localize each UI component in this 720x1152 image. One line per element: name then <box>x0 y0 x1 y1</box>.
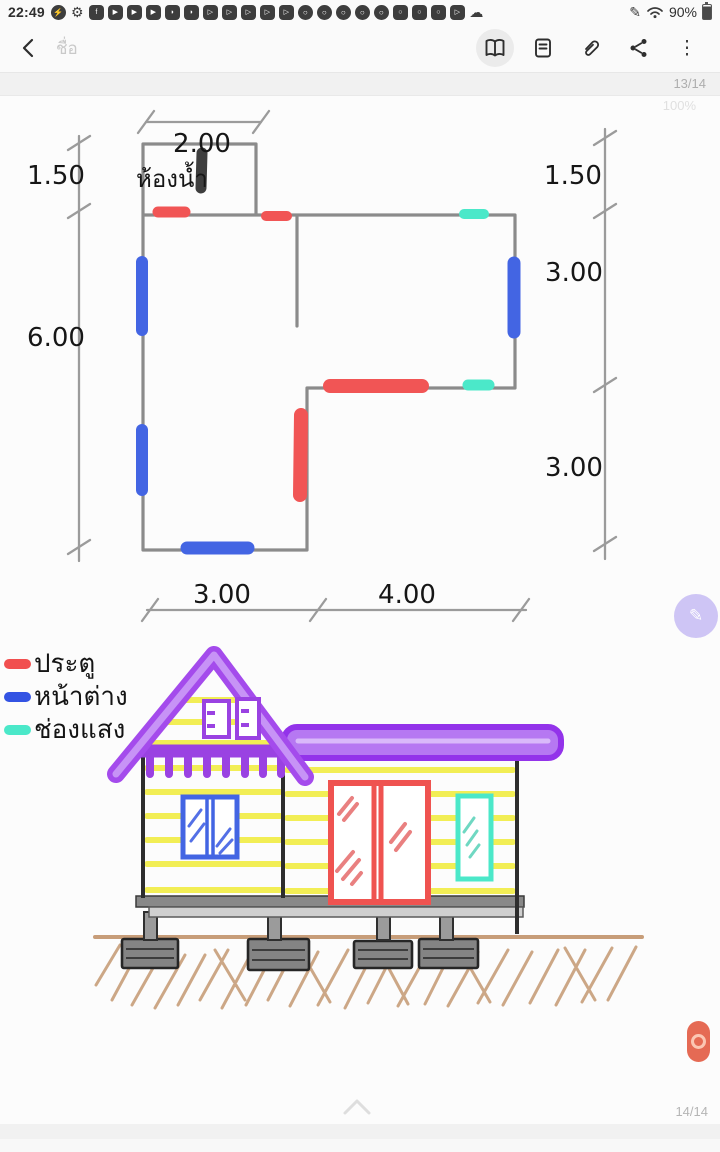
room-label: ห้องน้ำ <box>136 161 208 193</box>
page-indicator-bottom: 14/14 <box>675 1104 708 1119</box>
house-elevation <box>95 655 642 1008</box>
page-gap-bottom <box>0 1124 720 1139</box>
legend-label-door: ประตู <box>34 650 95 679</box>
footings <box>122 939 478 970</box>
floor-beam-lower <box>149 907 523 917</box>
dim-right-lower: 3.00 <box>545 453 603 483</box>
dim-left-upper: 1.50 <box>27 161 85 191</box>
legend-row-light: ช่องแสง <box>4 716 125 745</box>
edge-panel-handle[interactable] <box>687 1021 710 1062</box>
dim-top-width: 2.00 <box>173 129 231 159</box>
elevation-window-cyan <box>458 796 491 879</box>
door-color-swatch <box>4 659 31 669</box>
dim-bottom-left: 3.00 <box>193 580 251 610</box>
pen-edit-fab[interactable]: ✎ <box>674 594 718 638</box>
legend-label-window: หน้าต่าง <box>34 683 128 712</box>
pen-icon: ✎ <box>689 606 703 626</box>
legend-row-window: หน้าต่าง <box>4 683 128 712</box>
floor-plan-walls <box>143 144 515 550</box>
floor-plan: 2.00 ห้องน้ำ 1.50 6.00 1.50 3.00 3.00 3.… <box>27 111 616 621</box>
light-opening-strokes <box>464 214 489 385</box>
dim-left-total: 6.00 <box>27 323 85 353</box>
dim-right-middle: 3.00 <box>545 258 603 288</box>
dim-right-upper: 1.50 <box>544 161 602 191</box>
note-drawing: 2.00 ห้องน้ำ 1.50 6.00 1.50 3.00 3.00 3.… <box>0 0 720 1152</box>
door-strokes <box>158 212 422 495</box>
elevation-window-blue <box>183 797 237 857</box>
legend-label-light: ช่องแสง <box>34 716 125 745</box>
light-color-swatch <box>4 725 31 735</box>
flat-roof <box>284 727 561 758</box>
gable-vent <box>204 699 259 738</box>
window-strokes <box>142 262 514 548</box>
elevation-door-red <box>331 783 428 902</box>
window-color-swatch <box>4 692 31 702</box>
dim-bottom-right: 4.00 <box>378 580 436 610</box>
next-page-edge <box>0 1139 720 1152</box>
legend-row-door: ประตู <box>4 650 95 679</box>
scroll-up-hint <box>345 1101 369 1113</box>
